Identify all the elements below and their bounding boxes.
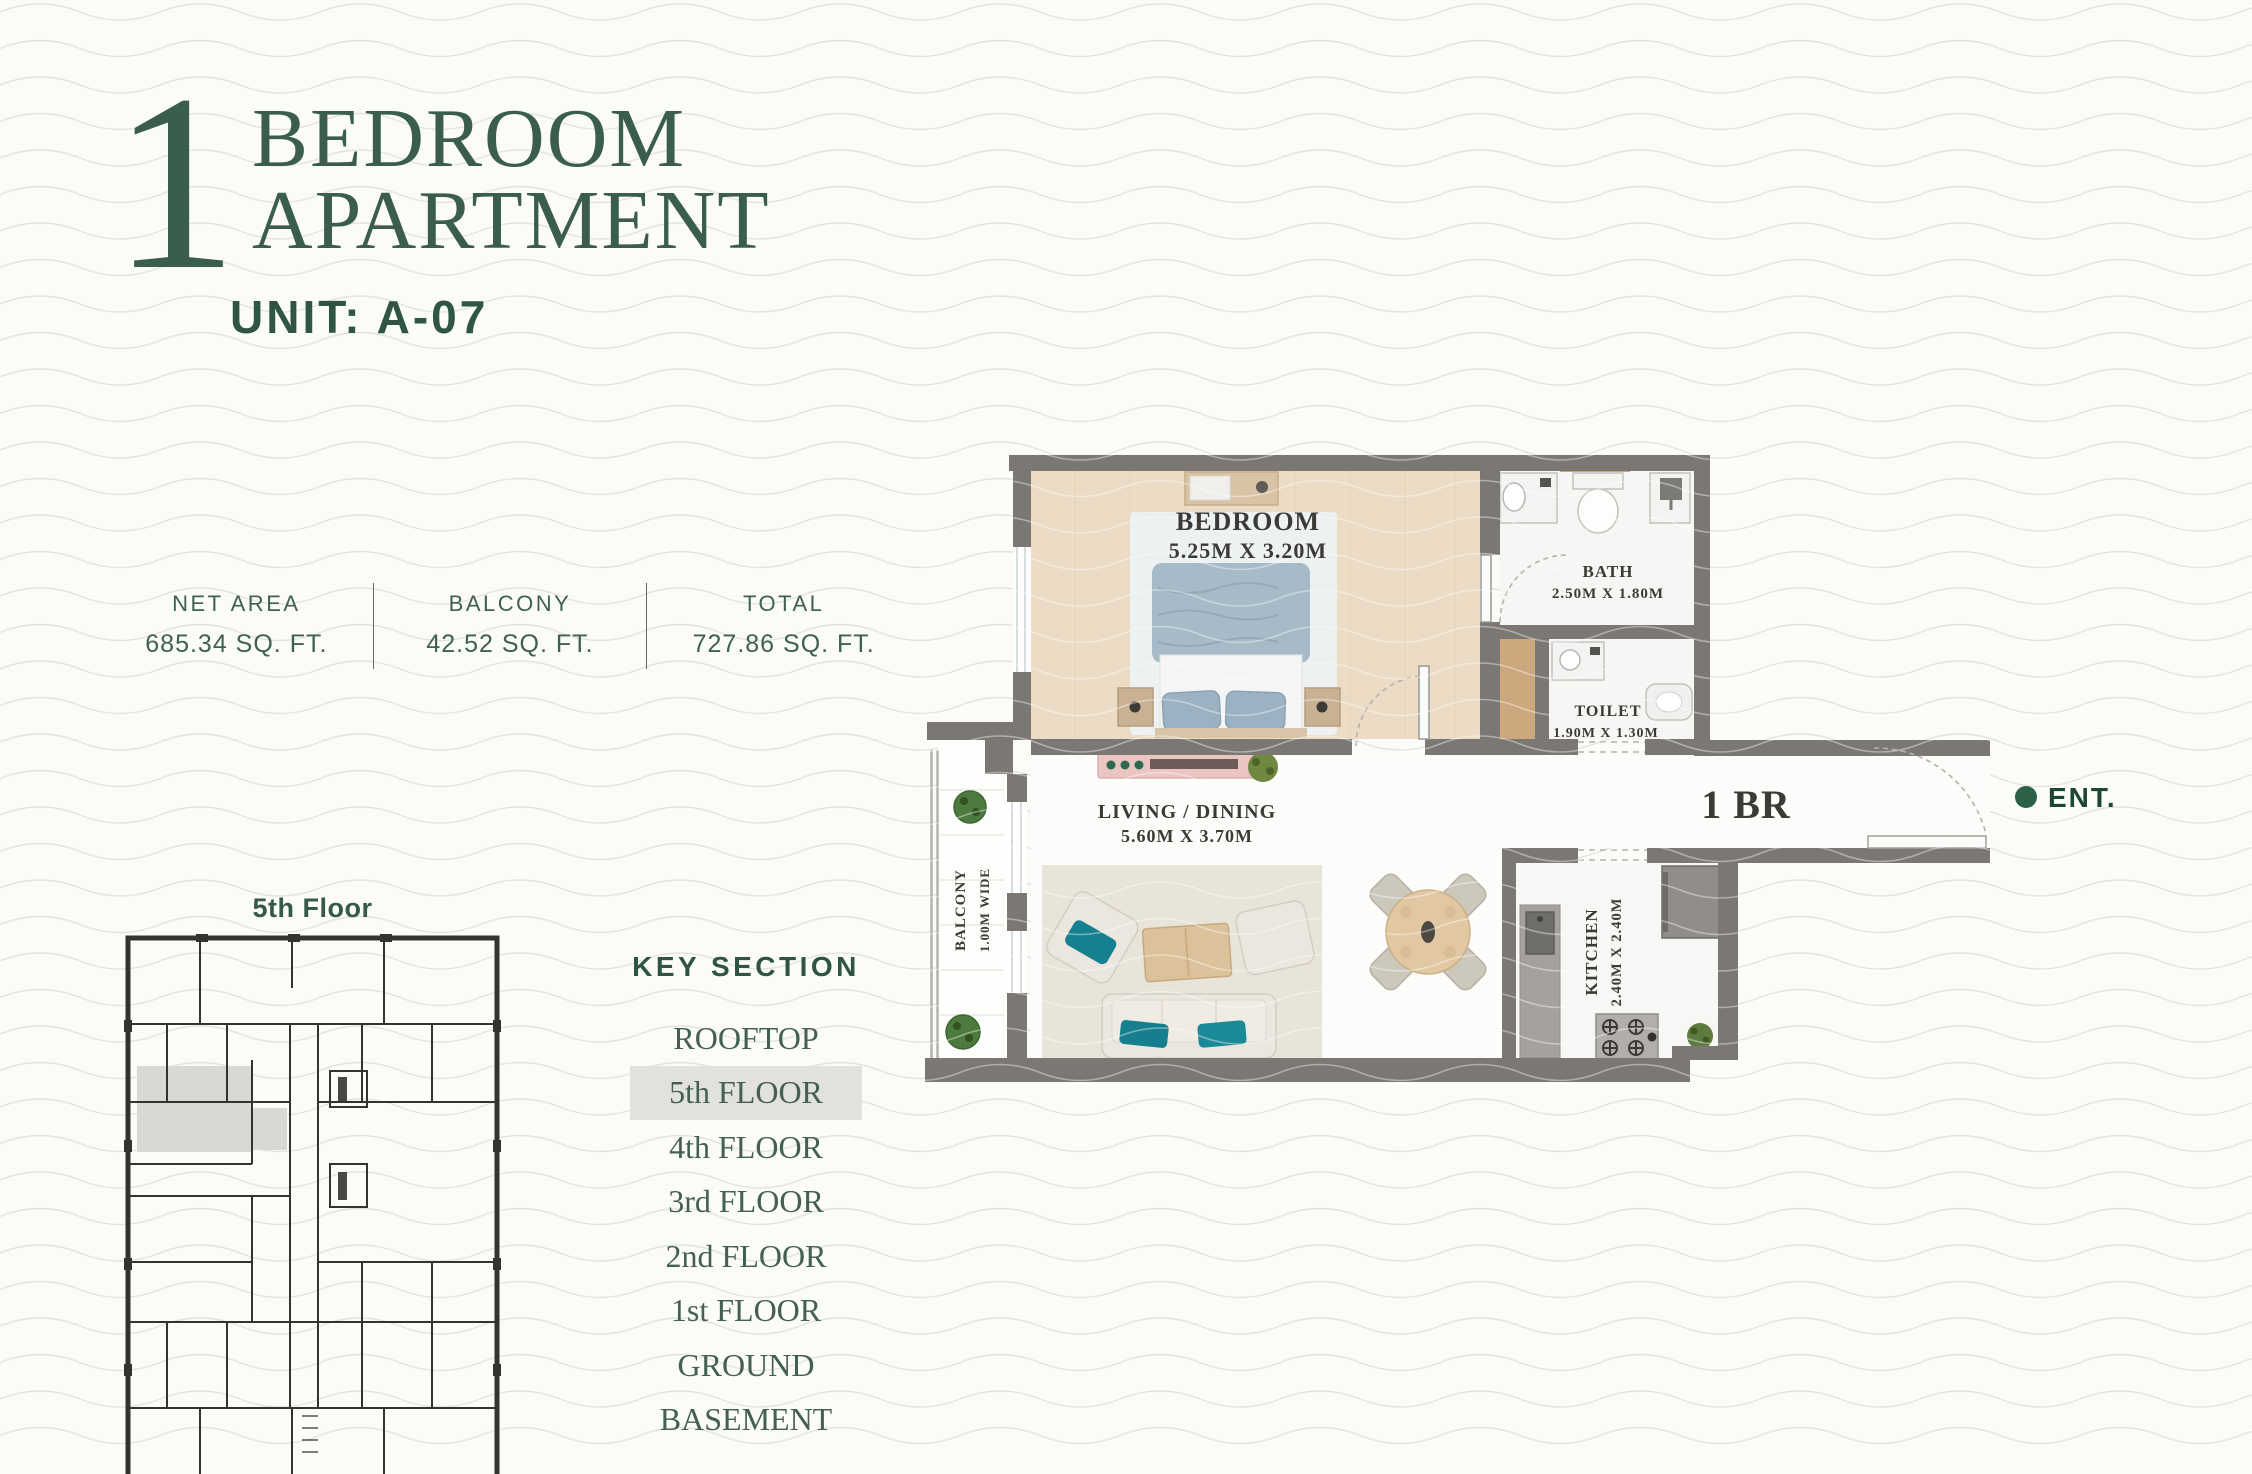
living-label: LIVING / DINING xyxy=(1098,801,1276,823)
page-title: 1 BEDROOM APARTMENT xyxy=(112,74,771,291)
title-line-2: APARTMENT xyxy=(252,180,771,262)
key-floor-item-4th[interactable]: 4th FLOOR xyxy=(630,1120,862,1175)
key-floor-item-3rd[interactable]: 3rd FLOOR xyxy=(630,1175,862,1230)
key-floor-item-rooftop[interactable]: ROOFTOP xyxy=(630,1011,862,1066)
key-floor-item-ground[interactable]: GROUND xyxy=(630,1338,862,1393)
key-section-floor-list: ROOFTOP 5th FLOOR 4th FLOOR 3rd FLOOR 2n… xyxy=(598,1011,894,1447)
title-number: 1 xyxy=(112,74,238,291)
stat-net-area: NET AREA 685.34 SQ. FT. xyxy=(100,583,373,669)
bath-label: BATH xyxy=(1583,562,1634,581)
highlighted-unit-region xyxy=(197,1108,287,1150)
mini-plan-caption: 5th Floor xyxy=(122,893,503,924)
entrance-dot-icon xyxy=(2015,786,2037,808)
toilet-label: TOILET xyxy=(1574,703,1641,720)
page-root: 1 BEDROOM APARTMENT UNIT: A-07 NET AREA … xyxy=(0,0,2252,1474)
balcony-label: BALCONY xyxy=(953,869,969,951)
unit-type-label: 1 BR xyxy=(1701,782,1791,827)
bath-dims: 2.50M X 1.80M xyxy=(1552,586,1664,602)
bedroom-dims: 5.25M X 3.20M xyxy=(1169,538,1327,563)
entrance-marker: ENT. xyxy=(2015,782,2117,813)
key-section-title: KEY SECTION xyxy=(598,951,894,983)
stat-balcony: BALCONY 42.52 SQ. FT. xyxy=(373,583,647,669)
living-dims: 5.60M X 3.70M xyxy=(1121,826,1253,846)
key-floor-item-5th[interactable]: 5th FLOOR xyxy=(630,1066,862,1121)
stat-value: 685.34 SQ. FT. xyxy=(100,630,373,659)
title-lines: BEDROOM APARTMENT xyxy=(252,74,771,291)
stat-label: NET AREA xyxy=(100,591,373,617)
key-floor-item-2nd[interactable]: 2nd FLOOR xyxy=(630,1229,862,1284)
unit-floor-plan: BEDROOM 5.25M X 3.20M BATH 2.50M X 1.80M… xyxy=(900,438,2152,1100)
unit-label: UNIT: A-07 xyxy=(230,290,488,344)
title-line-1: BEDROOM xyxy=(252,98,771,180)
bedroom-label: BEDROOM xyxy=(1176,507,1320,536)
balcony-dims: 1.00M WIDE xyxy=(977,868,992,952)
stat-value: 42.52 SQ. FT. xyxy=(374,630,647,659)
stat-value: 727.86 SQ. FT. xyxy=(647,630,920,659)
entrance-label: ENT. xyxy=(2048,782,2117,813)
stat-total: TOTAL 727.86 SQ. FT. xyxy=(646,583,920,669)
kitchen-dims: 2.40M X 2.40M xyxy=(1609,898,1625,1007)
area-stats: NET AREA 685.34 SQ. FT. BALCONY 42.52 SQ… xyxy=(100,583,920,669)
key-floor-item-1st[interactable]: 1st FLOOR xyxy=(630,1284,862,1339)
stat-label: TOTAL xyxy=(647,591,920,617)
stat-label: BALCONY xyxy=(374,591,647,617)
building-key-plan xyxy=(122,932,503,1474)
key-floor-item-basement[interactable]: BASEMENT xyxy=(630,1393,862,1448)
kitchen-label: KITCHEN xyxy=(1582,908,1601,995)
toilet-dims: 1.90M X 1.30M xyxy=(1553,726,1659,741)
